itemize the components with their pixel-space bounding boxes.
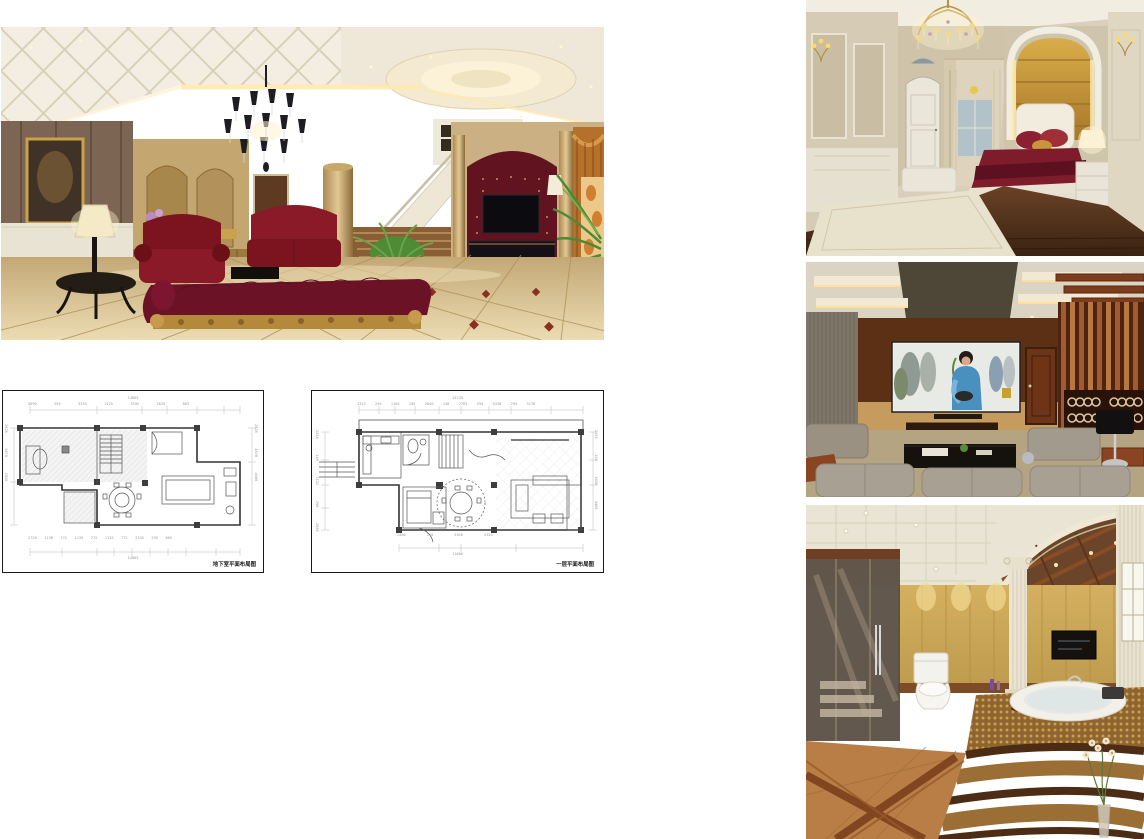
bedroom-render: [806, 0, 1144, 256]
plan-left-dimensions: 2248 140 1122 298 2986: [315, 430, 319, 532]
pendant-lamp: [970, 86, 978, 94]
toilet: [914, 653, 950, 709]
first-floor-plan: 15239 1313 295 1165 295 2640 140 2785 29…: [311, 390, 604, 573]
bedroom-scene: [806, 0, 1144, 256]
door: [1026, 348, 1056, 424]
plan-bottom-dimensions: 2406 140 3920 5355: [397, 533, 493, 537]
plan-total-dimension: 14865: [74, 396, 192, 400]
hatched-room: [22, 430, 147, 482]
ottoman-left: [806, 424, 868, 458]
terrace-band: [359, 420, 583, 432]
media-room-scene: [806, 262, 1144, 497]
left-wall: [806, 12, 898, 232]
design-collage-page: 14865 5890 295 3335 1425 3595 2825 865 2…: [0, 0, 1144, 839]
plan-bottom-dimensions: 2720 1130 772 1135 772 1135 772 2135 295…: [28, 536, 172, 540]
plan-total-dimension: 15239: [392, 396, 524, 400]
woman-in-blue: [952, 366, 982, 410]
floor: [806, 741, 966, 839]
bathroom-render: [806, 505, 1144, 839]
bed-bench: [902, 168, 956, 192]
plan-right-dimensions: 2928 4678 4508: [254, 424, 258, 481]
basement-floor-plan: 14865 5890 295 3335 1425 3595 2825 865 2…: [2, 390, 264, 573]
basement-plan-drawing: [2, 390, 264, 573]
media-room-render: [806, 262, 1144, 497]
first-floor-plan-caption: 一层平面布局图: [556, 560, 594, 568]
plan-bottom-total: 14865: [74, 556, 192, 560]
plan-right-dimensions: 2355 140 4458 4408: [594, 430, 598, 510]
bath-pillow: [1102, 687, 1124, 699]
coffee-table: [904, 444, 1034, 468]
left-marble-wall: [1, 121, 139, 263]
plan-left-dimensions: 2928 6878 2928: [4, 424, 8, 481]
projection-screen: [892, 342, 1020, 412]
bathroom-scene: [806, 505, 1144, 839]
wall-tv: [1052, 631, 1096, 659]
burgundy-chaise: [143, 278, 431, 329]
living-room-render: [1, 27, 604, 340]
plan-top-dimensions: 1313 295 1165 295 2640 140 2785 295 5430…: [357, 402, 535, 406]
plan-bottom-total: 11000: [392, 552, 524, 556]
front-seat-cushions: [816, 464, 1130, 497]
basement-plan-caption: 地下室平面布局图: [213, 560, 256, 568]
left-wall: [806, 312, 858, 442]
first-floor-plan-drawing: [311, 390, 604, 573]
living-room-scene: [1, 27, 604, 340]
living-room-tile: [496, 438, 579, 528]
glass-shower: [806, 549, 900, 741]
soundbar: [934, 414, 982, 419]
right-wall: [1108, 12, 1144, 234]
plan-top-dimensions: 5890 295 3335 1425 3595 2825 865: [28, 402, 189, 406]
television: [483, 195, 539, 233]
ottoman-right: [1028, 428, 1100, 460]
